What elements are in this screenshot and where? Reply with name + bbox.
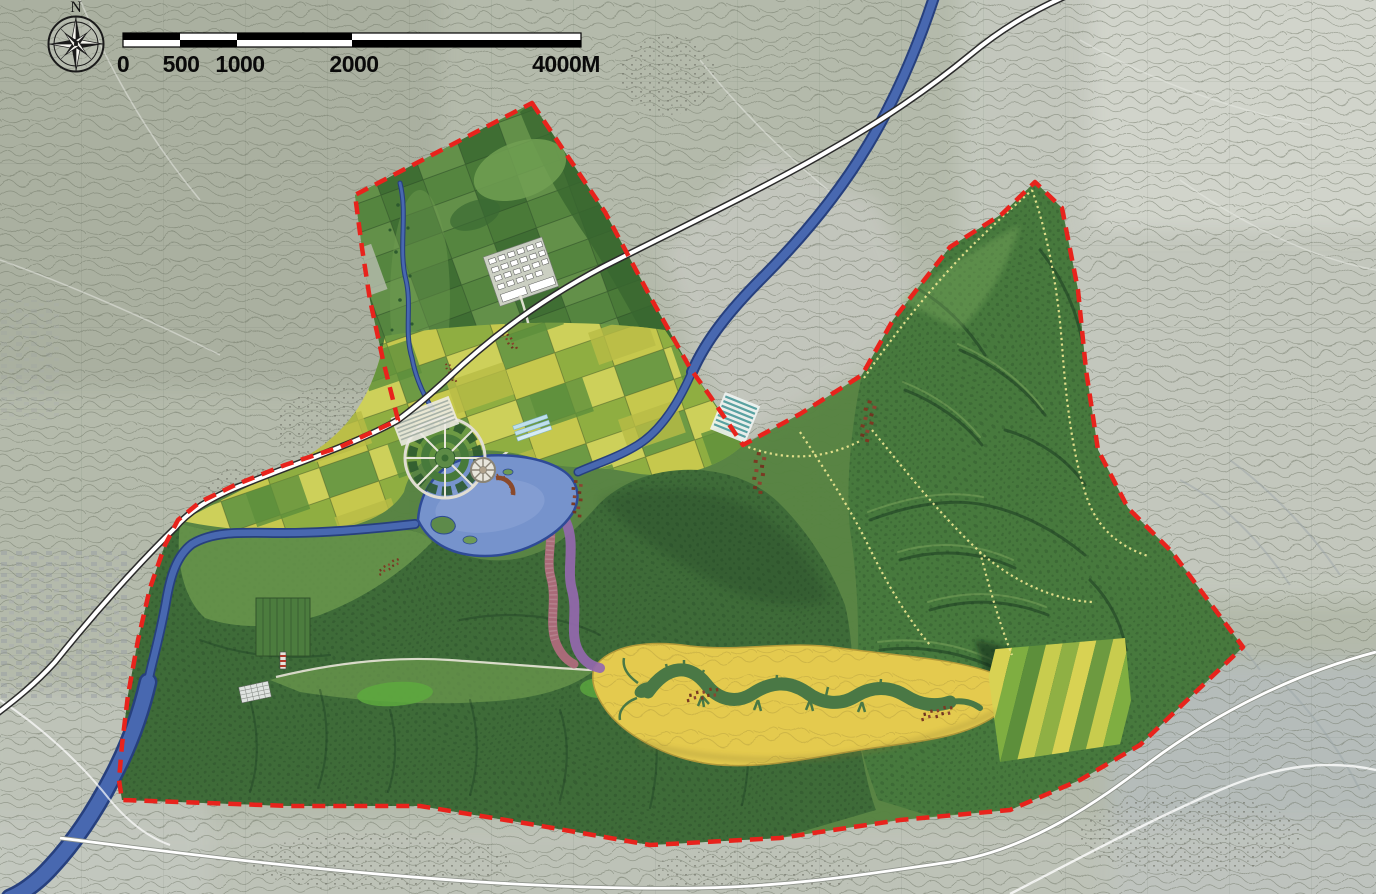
master-plan-map: N 0 500 1000 2000 4000M (0, 0, 1376, 894)
scale-tick-4000m: 4000M (532, 51, 600, 77)
scale-tick-0: 0 (117, 51, 129, 77)
pagoda-tower (280, 652, 286, 669)
plantation-orchard (256, 598, 310, 656)
scale-tick-500: 500 (163, 51, 200, 77)
scale-tick-1000: 1000 (215, 51, 264, 77)
map-canvas: N 0 500 1000 2000 4000M (0, 0, 1376, 894)
north-label: N (70, 0, 82, 16)
scale-tick-2000: 2000 (329, 51, 378, 77)
wheel-plaza (471, 458, 495, 482)
